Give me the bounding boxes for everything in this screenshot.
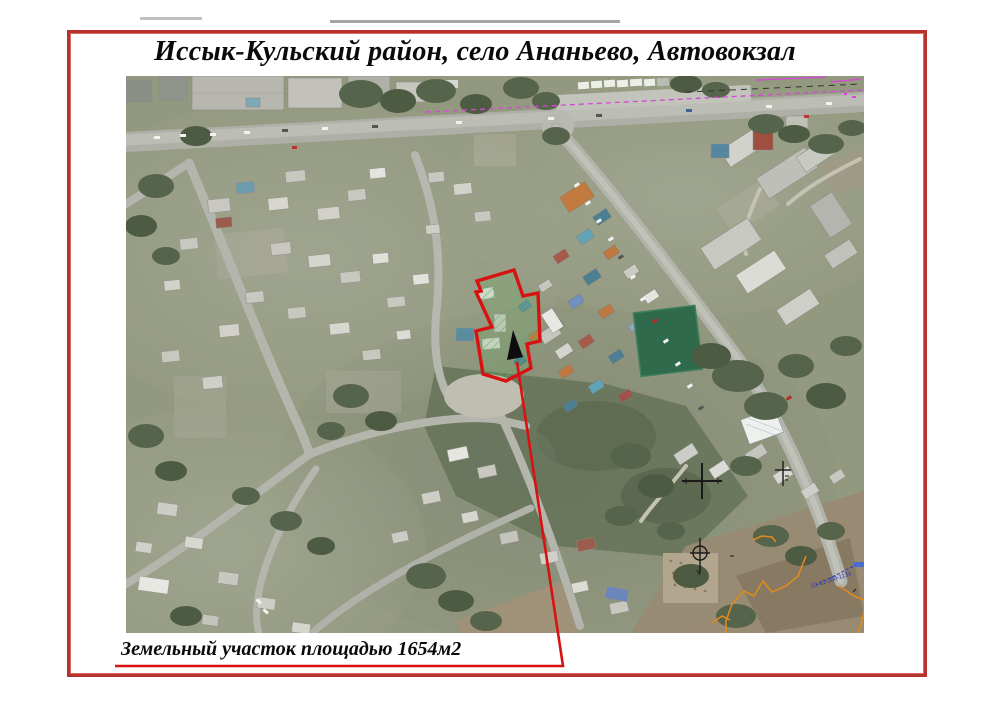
scan-artifact bbox=[330, 20, 620, 23]
parcel-caption: Земельный участок площадью 1654м2 bbox=[121, 638, 461, 661]
page-title: Иссык-Кульский район, село Ананьево, Авт… bbox=[100, 36, 850, 68]
document-page: Иссык-Кульский район, село Ананьево, Авт… bbox=[0, 0, 1000, 707]
scan-artifact bbox=[140, 17, 202, 20]
satellite-map: 03-11-100-1134 bbox=[126, 76, 864, 633]
